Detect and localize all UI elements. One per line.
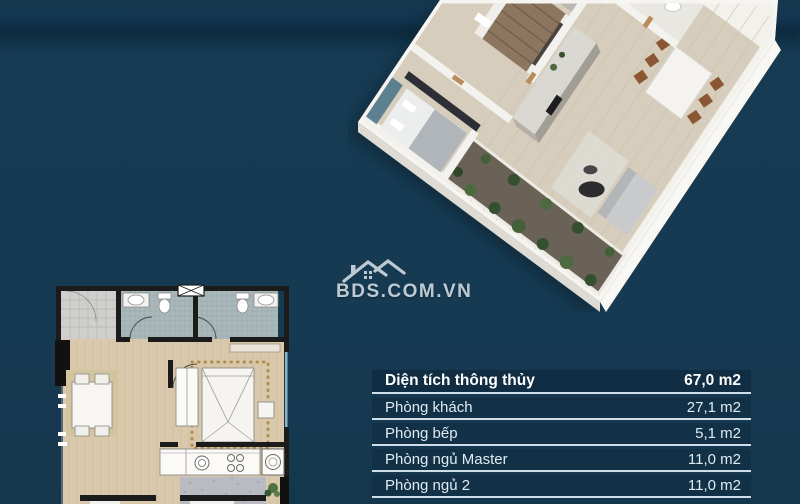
bath2-toilet-tank	[236, 293, 249, 299]
wall-bottom-a	[80, 495, 156, 501]
wall-bath-bottom-a	[116, 337, 130, 342]
area-row-label: Phòng ngủ 2	[385, 477, 470, 494]
wall-right-lower	[284, 427, 289, 477]
wall-bath-bottom-c	[230, 337, 289, 342]
bath1-toilet	[159, 299, 170, 313]
2d-floorplan	[30, 282, 292, 504]
house-roof-icon	[342, 257, 406, 283]
watermark: BDS.COM.VN	[336, 257, 526, 303]
area-header-label: Diện tích thông thủy	[385, 372, 535, 390]
area-row-value: 11,0 m2	[688, 451, 741, 468]
area-row-value: 11,0 m2	[688, 477, 741, 494]
console-shelf	[230, 344, 280, 352]
bath2-toilet	[237, 299, 248, 313]
bath2-sink	[258, 295, 274, 305]
area-row-label: Phòng khách	[385, 399, 473, 416]
kitchen-wall-b	[196, 442, 284, 447]
side-table	[583, 165, 597, 174]
wall-entry-bath	[116, 289, 121, 339]
kitchen-plant-2	[559, 52, 565, 58]
wall-top	[56, 286, 289, 291]
area-row-living: Phòng khách 27,1 m2	[372, 397, 751, 420]
bedroom-wall	[168, 360, 173, 388]
nightstand	[258, 402, 274, 418]
area-row-master-bedroom: Phòng ngủ Master 11,0 m2	[372, 449, 751, 472]
wall-bath-bottom-b	[148, 337, 212, 342]
area-row-value: 5,1 m2	[695, 425, 741, 442]
area-row-value: 27,1 m2	[687, 399, 741, 416]
wall-right-bottom	[280, 477, 289, 504]
area-table: Diện tích thông thủy 67,0 m2 Phòng khách…	[372, 370, 751, 501]
plan-dining-table	[72, 382, 112, 428]
area-row-kitchen: Phòng bếp 5,1 m2	[372, 423, 751, 446]
area-table-header-row: Diện tích thông thủy 67,0 m2	[372, 370, 751, 394]
area-row-bedroom2: Phòng ngủ 2 11,0 m2	[372, 475, 751, 498]
bed-2d	[202, 368, 254, 442]
kitchen-plant	[550, 64, 557, 71]
kitchen-wall-a	[160, 442, 178, 447]
area-header-value: 67,0 m2	[684, 372, 741, 390]
area-row-label: Phòng bếp	[385, 425, 458, 442]
wall-left-top	[56, 289, 61, 342]
bath1-toilet-tank	[158, 293, 171, 299]
page: BDS.COM.VN Diện tích thông thủy 67,0 m2 …	[0, 0, 800, 504]
wall-right-top	[284, 286, 289, 352]
coffee-table	[579, 181, 605, 197]
2d-floorplan-svg	[30, 282, 292, 504]
watermark-text: BDS.COM.VN	[336, 281, 526, 303]
kitchen-sink-2d	[195, 456, 209, 470]
bath1-sink	[128, 295, 144, 305]
wall-bottom-b	[180, 495, 266, 501]
window-right	[285, 352, 288, 427]
area-row-label: Phòng ngủ Master	[385, 451, 508, 468]
entry-tile	[61, 291, 116, 339]
